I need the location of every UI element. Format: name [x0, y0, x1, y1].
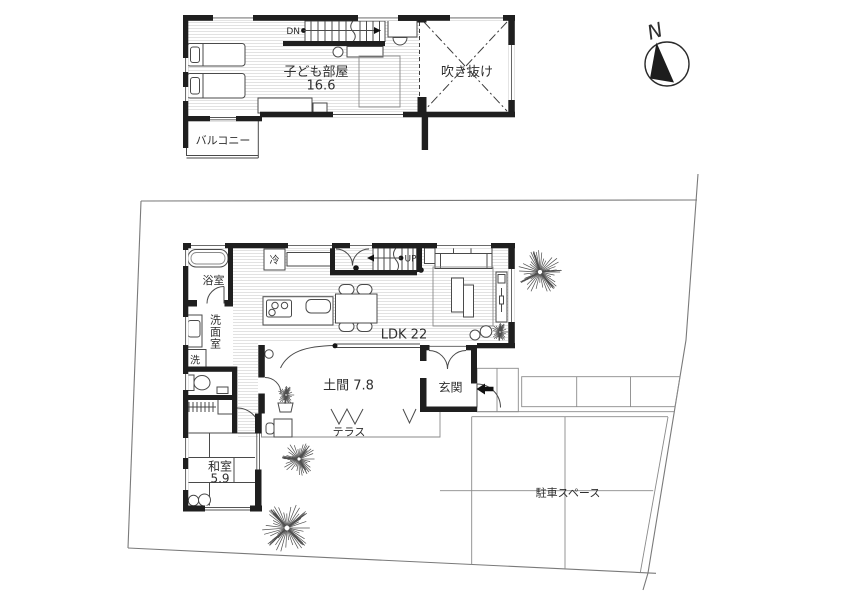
back-counter [287, 253, 334, 267]
japanese-room-area: 5.9 [210, 472, 229, 486]
tree [262, 505, 310, 551]
stairs-up: UP [367, 248, 417, 272]
coffee-table [464, 285, 474, 317]
desk [388, 21, 417, 38]
tree [282, 444, 315, 476]
pillow [191, 78, 200, 95]
entry-arrow [477, 384, 494, 395]
bath-door-arc [207, 287, 224, 304]
stool [333, 47, 343, 57]
balcony-label: バルコニー [196, 134, 251, 147]
washroom-label: 洗面室 [209, 314, 222, 350]
sink [306, 300, 331, 314]
tree [519, 250, 562, 291]
terrace-opening-mark [403, 409, 416, 423]
post-dot [333, 343, 338, 348]
ldk-label: LDK 22 [381, 328, 427, 343]
terrace-chair [266, 423, 274, 434]
long-desk [258, 98, 312, 113]
round-post [265, 350, 273, 358]
dining-table [336, 294, 378, 323]
laundry-label: 洗 [190, 355, 200, 367]
entrance-label: 玄関 [438, 380, 462, 395]
toilet-room [187, 375, 229, 394]
floor-plan-drawing: 駐車スペース [0, 0, 850, 600]
closet-box [218, 399, 233, 414]
coffee-table [452, 278, 464, 312]
second-floor-plan: DN [183, 15, 515, 158]
pillow [191, 47, 200, 63]
stool [470, 330, 480, 340]
compass-needle [650, 43, 674, 83]
dining-chair [339, 285, 354, 295]
stairs-down-label: DN [286, 27, 300, 37]
first-floor-plan: UP 冷 [183, 243, 515, 512]
refrigerator-label: 冷 [270, 254, 280, 267]
stool [480, 326, 492, 338]
sofa [435, 246, 492, 269]
void-label: 吹き抜け [441, 64, 493, 80]
post-dot [353, 265, 359, 271]
low-cabinet [347, 47, 383, 58]
fusuma-sliding-door [257, 434, 260, 470]
plant-pot [278, 403, 293, 412]
japanese-room-items [188, 494, 210, 506]
parking-label: 駐車スペース [536, 486, 601, 500]
north-arrow: N [644, 17, 689, 86]
dining-chair [357, 285, 372, 295]
stairs-up-label: UP [405, 255, 418, 265]
floor-plan-page: 駐車スペース [0, 0, 850, 600]
kids-room-area: 16.6 [307, 79, 336, 94]
toilet-shelf [217, 387, 228, 394]
terrace-label: テラス [333, 426, 366, 439]
floor-cushion [188, 495, 198, 505]
doma-label: 土間 7.8 [323, 379, 374, 394]
bathroom-label: 浴室 [203, 273, 225, 287]
floor-cushion [199, 494, 211, 506]
site-boundary [128, 174, 698, 590]
terrace-opening-mark [331, 409, 363, 424]
curved-wall [281, 346, 336, 369]
terrace-table [274, 419, 292, 437]
parking-area: 駐車スペース [440, 417, 668, 573]
north-label: N [644, 17, 666, 44]
toilet-bowl [194, 376, 210, 390]
desk-box [313, 103, 327, 113]
approach-slabs [477, 377, 680, 412]
